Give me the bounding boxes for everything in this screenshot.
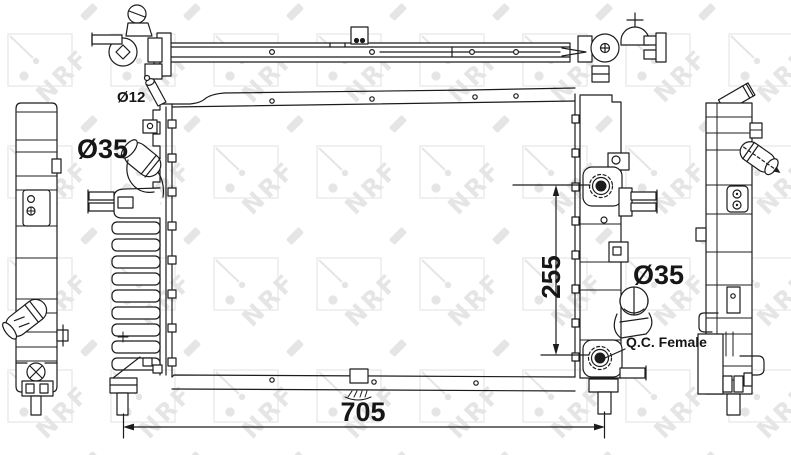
mounting-peg-right [598, 392, 611, 414]
outlet-pipe-stub [631, 192, 656, 200]
side-mounting-peg [31, 396, 41, 415]
mounting-peg-left [117, 393, 128, 415]
height-dimension-label: 255 [536, 255, 566, 298]
neck-diameter-label: Ø12 [117, 89, 145, 106]
outlet-diameter-label: Ø35 [633, 260, 684, 290]
side-clip [52, 159, 61, 173]
qc-connector-label: Q.C. Female [626, 334, 707, 350]
drawing-canvas: NRF [0, 0, 791, 455]
width-dimension-label: 705 [340, 397, 385, 427]
top-center-bracket [351, 27, 368, 44]
inlet-diameter-label: Ø35 [77, 134, 128, 164]
inlet-pipe-stub [89, 192, 114, 200]
side-mounting-peg-right [727, 394, 740, 415]
radiator-technical-drawing: NRF [0, 0, 791, 455]
top-pipe-stub [92, 35, 122, 44]
